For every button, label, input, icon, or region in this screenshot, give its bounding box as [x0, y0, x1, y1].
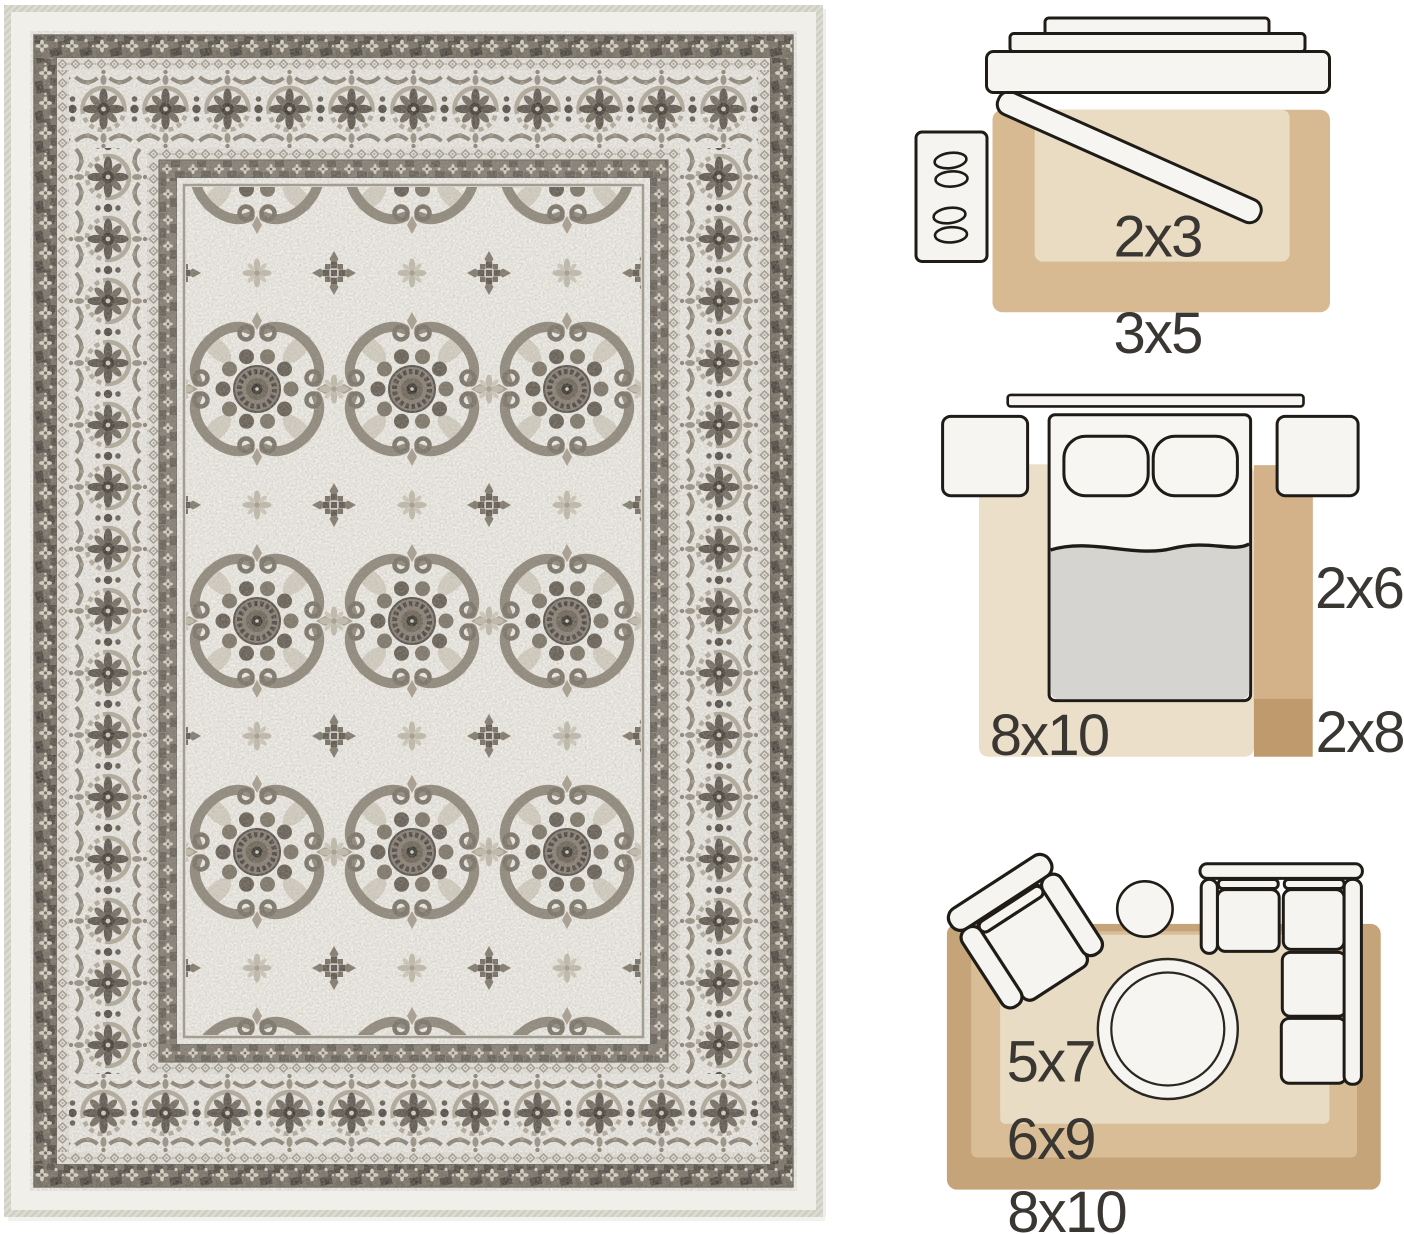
svg-text:8x10: 8x10 [990, 703, 1109, 768]
svg-text:5x7: 5x7 [1007, 1030, 1095, 1095]
svg-text:2x6: 2x6 [1315, 556, 1403, 621]
svg-text:3x5: 3x5 [1113, 301, 1201, 366]
svg-text:8x10: 8x10 [1007, 1180, 1126, 1234]
svg-text:2x8: 2x8 [1316, 700, 1404, 765]
svg-text:6x9: 6x9 [1007, 1107, 1095, 1172]
svg-text:2x3: 2x3 [1113, 205, 1201, 270]
